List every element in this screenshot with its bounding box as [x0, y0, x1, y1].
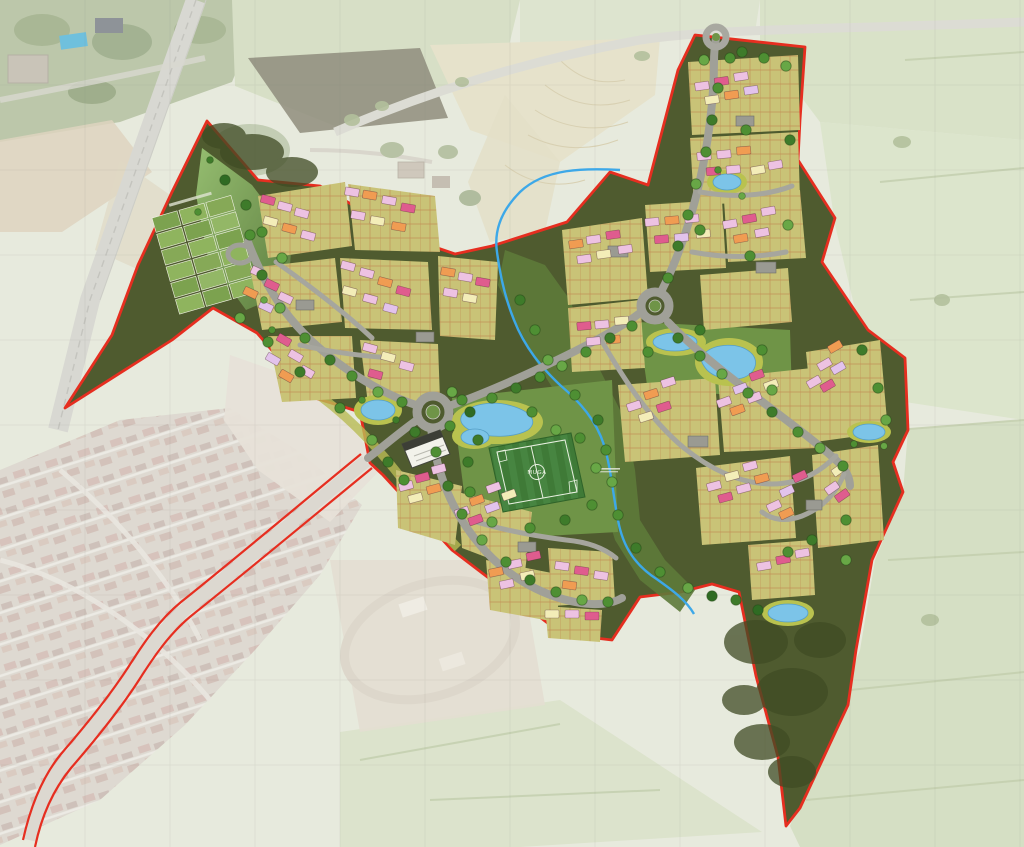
pond-north: [713, 174, 741, 190]
pond-south: [768, 604, 808, 622]
pond-west: [361, 400, 395, 420]
east-roundabout: [641, 292, 669, 320]
muga-label: MUGA: [527, 470, 546, 476]
pond-east-edge: [853, 424, 885, 440]
entrance-roundabout: [706, 27, 726, 47]
masterplan-map: MUGA: [0, 0, 1024, 847]
